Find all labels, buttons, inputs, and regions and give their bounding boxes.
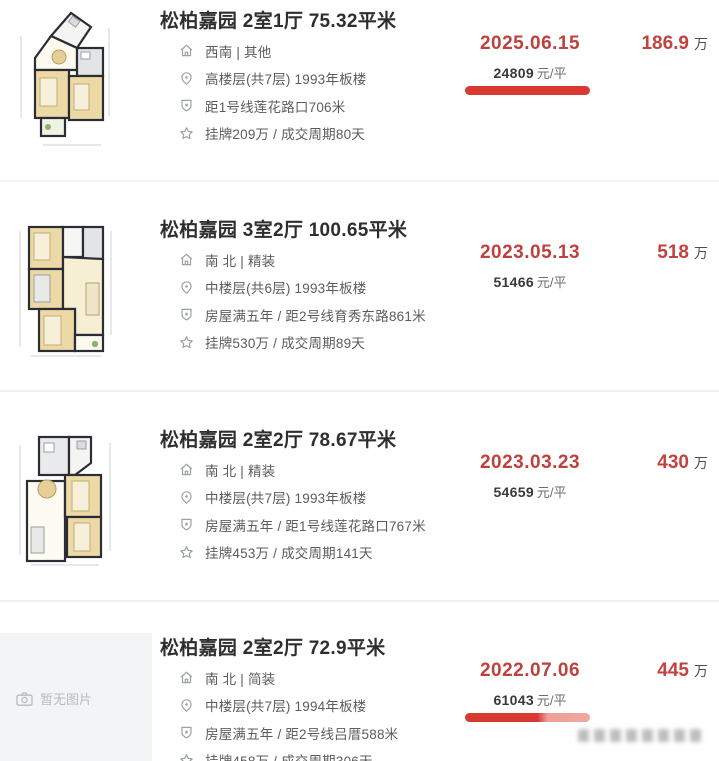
red-underline-mark — [465, 86, 590, 95]
star-icon — [179, 126, 194, 141]
unit-price-value: 51466 — [493, 274, 533, 290]
listing-row-2[interactable]: 松柏嘉园 3室2厅 100.65平米 南 北 | 精装 中楼层(共6层) 199… — [0, 215, 719, 393]
unit-price-suffix: 元/平 — [537, 485, 567, 500]
orientation-line: 南 北 | 精装 — [179, 246, 426, 274]
unit-price-value: 61043 — [493, 692, 533, 708]
transport-line: 房屋满五年 / 距1号线莲花路口767米 — [179, 511, 426, 539]
location-pin-icon — [179, 490, 194, 505]
orientation-text: 南 北 | 精装 — [205, 250, 275, 270]
listing-title: 松柏嘉园 2室2厅 78.67平米 — [160, 425, 396, 452]
transport-text: 房屋满五年 / 距2号线育秀东路861米 — [205, 305, 426, 325]
listing-cycle-line: 挂牌458万 / 成交周期306天 — [179, 747, 398, 761]
deal-date: 2025.06.15 — [462, 33, 598, 55]
unit-price: 61043元/平 — [462, 690, 598, 709]
total-price-value: 445 — [657, 660, 689, 681]
transport-line: 房屋满五年 / 距2号线育秀东路861米 — [179, 301, 426, 329]
transport-text: 房屋满五年 / 距2号线吕厝588米 — [205, 723, 398, 743]
orientation-line: 南 北 | 精装 — [179, 456, 426, 484]
total-price: 518万 — [596, 242, 708, 264]
unit-price-suffix: 元/平 — [537, 693, 567, 708]
badge-shield-icon — [179, 98, 194, 113]
unit-price-value: 54659 — [493, 484, 533, 500]
total-price: 445万 — [596, 660, 708, 682]
floor-line: 高楼层(共7层) 1993年板楼 — [179, 65, 366, 93]
camera-icon — [16, 692, 33, 706]
unit-price-suffix: 元/平 — [537, 275, 567, 290]
row-divider — [0, 600, 719, 602]
unit-price-value: 24809 — [493, 65, 533, 81]
transport-text: 房屋满五年 / 距1号线莲花路口767米 — [205, 515, 426, 535]
floorplan-image[interactable] — [13, 6, 117, 151]
listing-cycle-line: 挂牌530万 / 成交周期89天 — [179, 329, 426, 357]
deal-date: 2023.05.13 — [462, 242, 598, 264]
floor-text: 高楼层(共7层) 1993年板楼 — [205, 68, 366, 88]
unit-price: 54659元/平 — [462, 482, 598, 501]
listing-cycle-line: 挂牌209万 / 成交周期80天 — [179, 120, 366, 148]
unit-price: 24809元/平 — [462, 63, 598, 82]
orientation-text: 南 北 | 精装 — [205, 460, 275, 480]
total-price-value: 430 — [657, 452, 689, 473]
unit-price: 51466元/平 — [462, 272, 598, 291]
total-price: 186.9万 — [596, 33, 708, 55]
listing-cycle-text: 挂牌453万 / 成交周期141天 — [205, 542, 373, 562]
orientation-text: 西南 | 其他 — [205, 41, 271, 61]
badge-shield-icon — [179, 517, 194, 532]
transport-line: 房屋满五年 / 距2号线吕厝588米 — [179, 719, 398, 747]
floorplan-image[interactable] — [13, 215, 117, 360]
total-price-unit: 万 — [694, 245, 708, 261]
home-icon — [179, 462, 194, 477]
star-icon — [179, 545, 194, 560]
watermark-blurred — [578, 729, 706, 742]
no-image-label: 暂无图片 — [40, 689, 92, 708]
total-price-value: 518 — [657, 242, 689, 263]
location-pin-icon — [179, 280, 194, 295]
row-divider — [0, 390, 719, 392]
total-price-value: 186.9 — [641, 33, 689, 54]
floorplan-image[interactable] — [13, 425, 117, 570]
home-icon — [179, 252, 194, 267]
floor-text: 中楼层(共7层) 1993年板楼 — [205, 487, 366, 507]
listing-cycle-text: 挂牌530万 / 成交周期89天 — [205, 332, 365, 352]
total-price-unit: 万 — [694, 36, 708, 52]
total-price: 430万 — [596, 452, 708, 474]
sold-listings-page: 松柏嘉园 2室1厅 75.32平米 西南 | 其他 高楼层(共7层) 1993年… — [0, 0, 719, 761]
total-price-unit: 万 — [694, 455, 708, 471]
orientation-text: 南 北 | 简装 — [205, 668, 275, 688]
listing-title: 松柏嘉园 3室2厅 100.65平米 — [160, 215, 407, 242]
home-icon — [179, 670, 194, 685]
star-icon — [179, 335, 194, 350]
listing-title: 松柏嘉园 2室2厅 72.9平米 — [160, 633, 385, 660]
deal-date: 2023.03.23 — [462, 452, 598, 474]
listing-cycle-text: 挂牌209万 / 成交周期80天 — [205, 123, 365, 143]
deal-date: 2022.07.06 — [462, 660, 598, 682]
badge-shield-icon — [179, 725, 194, 740]
badge-shield-icon — [179, 307, 194, 322]
row-divider — [0, 180, 719, 182]
floor-line: 中楼层(共7层) 1994年板楼 — [179, 692, 398, 720]
floor-line: 中楼层(共6层) 1993年板楼 — [179, 274, 426, 302]
orientation-line: 南 北 | 简装 — [179, 664, 398, 692]
transport-text: 距1号线莲花路口706米 — [205, 96, 345, 116]
floor-text: 中楼层(共6层) 1993年板楼 — [205, 277, 366, 297]
star-icon — [179, 753, 194, 761]
listing-cycle-text: 挂牌458万 / 成交周期306天 — [205, 750, 373, 761]
transport-line: 距1号线莲花路口706米 — [179, 92, 366, 120]
unit-price-suffix: 元/平 — [537, 66, 567, 81]
location-pin-icon — [179, 71, 194, 86]
listing-row-3[interactable]: 松柏嘉园 2室2厅 78.67平米 南 北 | 精装 中楼层(共7层) 1993… — [0, 425, 719, 603]
floor-text: 中楼层(共7层) 1994年板楼 — [205, 695, 366, 715]
floor-line: 中楼层(共7层) 1993年板楼 — [179, 484, 426, 512]
location-pin-icon — [179, 698, 194, 713]
listing-cycle-line: 挂牌453万 / 成交周期141天 — [179, 539, 426, 567]
orientation-line: 西南 | 其他 — [179, 37, 366, 65]
listing-title: 松柏嘉园 2室1厅 75.32平米 — [160, 6, 396, 33]
red-underline-mark — [465, 713, 590, 722]
total-price-unit: 万 — [694, 663, 708, 679]
home-icon — [179, 43, 194, 58]
listing-row-1[interactable]: 松柏嘉园 2室1厅 75.32平米 西南 | 其他 高楼层(共7层) 1993年… — [0, 6, 719, 184]
no-image-placeholder: 暂无图片 — [0, 633, 152, 761]
